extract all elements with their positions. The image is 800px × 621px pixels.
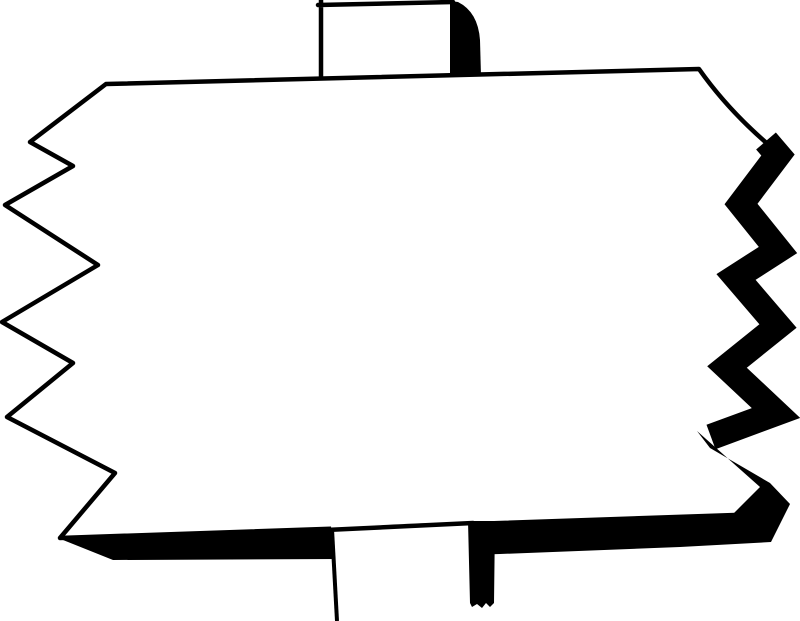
bottom-post-shadow-bar: [468, 521, 495, 608]
sign-board-face: [2, 69, 781, 538]
top-post-face: [321, 1, 452, 83]
signpost-clipart: [0, 0, 800, 621]
bottom-post-face: [331, 522, 470, 621]
signpost-illustration: [0, 0, 800, 621]
